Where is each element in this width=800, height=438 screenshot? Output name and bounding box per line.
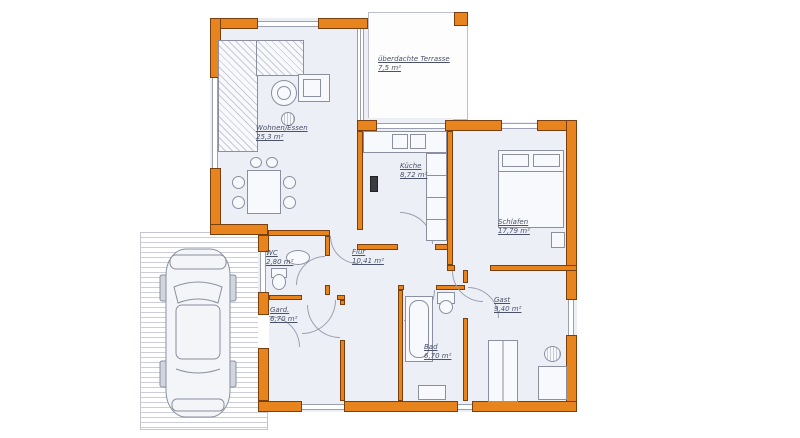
corner-sofa-icon: [218, 40, 258, 152]
room-area: 17,79 m²: [498, 227, 530, 236]
room-label-terrasse: überdachte Terrasse 7,5 m²: [378, 55, 450, 72]
room-name: Flur: [352, 248, 384, 257]
window: [377, 123, 445, 129]
window: [302, 404, 344, 410]
room-label-bad: Bad 6,70 m²: [424, 343, 451, 360]
pillow-icon: [533, 154, 560, 167]
wardrobe-icon: [488, 340, 518, 402]
room-area: 2,80 m²: [266, 258, 293, 267]
wall-segment: [447, 131, 453, 265]
car-top-view-icon: [158, 243, 238, 423]
room-area: 9,40 m²: [494, 305, 521, 314]
dining-chair-icon: [283, 196, 296, 209]
wall-segment: [398, 290, 403, 401]
wall-segment: [463, 318, 468, 401]
pillow-icon: [502, 154, 529, 167]
toilet-icon: [439, 300, 453, 314]
wall-segment: [566, 120, 577, 300]
toilet-icon: [272, 274, 286, 290]
room-area: 8,72 m²: [400, 171, 427, 180]
dining-chair-icon: [250, 157, 262, 168]
room-area: 6,70 m²: [270, 315, 297, 324]
plant-icon: [544, 346, 561, 362]
window: [458, 404, 472, 410]
room-name: überdachte Terrasse: [378, 55, 450, 64]
tv-board-icon: [303, 79, 321, 97]
terrace-pillar: [454, 12, 468, 26]
room-area: 6,70 m²: [424, 352, 451, 361]
sink-icon: [410, 134, 426, 149]
room-area: 25,3 m²: [256, 133, 308, 142]
room-label-gard: Gard. 6,70 m²: [270, 306, 297, 323]
entrance-door-opening: [258, 315, 269, 348]
wall-segment: [258, 292, 269, 315]
sink-icon: [418, 385, 446, 400]
room-name: Bad: [424, 343, 451, 352]
coffee-table-icon: [277, 86, 291, 100]
blanket-line: [498, 171, 564, 172]
wall-segment: [490, 265, 577, 271]
room-label-schlafen: Schlafen 17,79 m²: [498, 218, 530, 235]
kitchen-counter-icon: [426, 153, 447, 241]
corner-sofa-icon: [256, 40, 304, 76]
room-name: Küche: [400, 162, 427, 171]
wall-segment: [357, 120, 377, 131]
room-label-flur: Flur 10,41 m²: [352, 248, 384, 265]
wall-segment: [344, 401, 458, 412]
wall-segment: [445, 120, 502, 131]
window: [258, 21, 318, 27]
dining-chair-icon: [283, 176, 296, 189]
dining-chair-icon: [232, 196, 245, 209]
desk-icon: [538, 366, 567, 400]
room-name: Schlafen: [498, 218, 530, 227]
wall-segment: [210, 224, 268, 235]
room-area: 7,5 m²: [378, 64, 450, 73]
wall-segment: [258, 348, 269, 401]
floor-plan: Wohnen/Essen 25,3 m² überdachte Terrasse…: [0, 0, 800, 438]
wall-segment: [268, 230, 330, 236]
chimney-icon: [370, 176, 378, 192]
sink-icon: [392, 134, 408, 149]
room-label-wc: WC 2,80 m²: [266, 249, 293, 266]
wall-segment: [472, 401, 577, 412]
room-label-wohnen: Wohnen/Essen 25,3 m²: [256, 124, 308, 141]
nightstand-icon: [551, 232, 565, 248]
dining-chair-icon: [232, 176, 245, 189]
window: [568, 300, 574, 335]
wall-segment: [340, 300, 345, 305]
dining-table-icon: [247, 170, 281, 214]
wall-segment: [258, 401, 302, 412]
room-name: Gard.: [270, 306, 297, 315]
room-name: WC: [266, 249, 293, 258]
room-area: 10,41 m²: [352, 257, 384, 266]
dining-chair-icon: [266, 157, 278, 168]
room-label-kueche: Küche 8,72 m²: [400, 162, 427, 179]
room-name: Gast: [494, 296, 521, 305]
wall-segment: [318, 18, 368, 29]
window: [502, 123, 537, 129]
wall-segment: [340, 340, 345, 401]
room-name: Wohnen/Essen: [256, 124, 308, 133]
wall-segment: [269, 295, 302, 300]
wall-segment: [325, 285, 330, 295]
room-label-gast: Gast 9,40 m²: [494, 296, 521, 313]
terrace-door-window: [357, 29, 364, 120]
